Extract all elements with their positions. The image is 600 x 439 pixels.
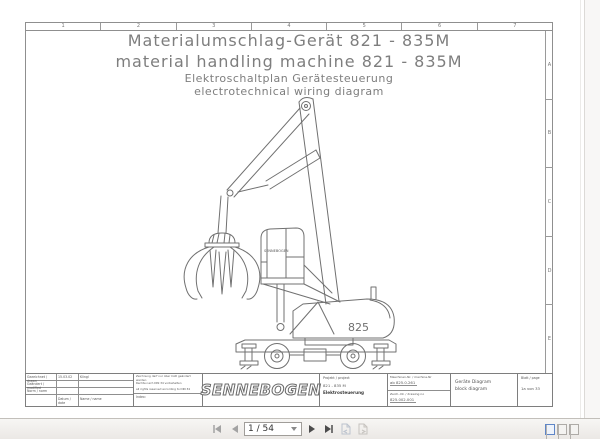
chevron-down-icon[interactable] [291,427,297,431]
frame-row-label: D [546,237,553,306]
index-label: Index: [134,393,202,406]
previous-page-button[interactable] [227,422,241,436]
notice-line-3: all rights reserved according to DIN 34 [136,388,201,392]
page-edge-line [580,0,581,418]
frame-row-label: C [546,168,553,237]
logo-text: SENNEBOGEN [201,381,322,399]
title-de: Materialumschlag-Gerät 821 - 835M [25,31,553,50]
drawn-label: Gezeichnet / drawn [26,374,56,380]
previous-view-button[interactable] [339,422,353,436]
modified-label: Geändert / modified [26,381,56,387]
sheet-page-box: Blatt / page 1a von 33 [517,374,554,406]
drawn-name: Klingl [78,374,133,380]
sheet-page-value: 1a von 33 [521,386,554,391]
frame-column-label: 3 [177,23,252,30]
frame-column-label: 4 [252,23,327,30]
frame-column-label: 1 [26,23,101,30]
doc-title-en: block diagram [455,386,517,393]
rights-notice: Zeichnung darf nur über CAD geändert wer… [133,374,202,406]
project-subsystem: Elektrosteuerung [323,390,387,395]
notice-line-2: Rechte nach DIN 34 vorbehalten [136,382,201,386]
machine-nr-value: ab 825.0.261 [390,379,417,386]
frame-row-label: B [546,100,553,169]
project-value: 821 - 835 M [323,383,387,388]
title-block: Gezeichnet / drawn 15.03.02 Klingl Geänd… [25,373,553,407]
frame-columns: 1234567 [25,22,553,31]
name-label: Name / name [78,395,133,406]
frame-column-label: 2 [101,23,176,30]
drawn-date: 15.03.02 [56,374,78,380]
project-label: Projekt / project [323,376,387,380]
frame-column-label: 7 [478,23,552,30]
number-box: Maschinen-Nr. / machine-Nr ab 825.0.261 … [387,374,450,406]
page-number-box[interactable] [244,422,302,436]
sennebogen-logo: SENNEBOGEN [202,374,319,406]
viewer-toolbar [0,418,600,439]
next-page-button[interactable] [305,422,319,436]
title-en: material handling machine 821 - 835M [25,52,553,71]
sheet-page-label: Blatt / page [521,376,554,380]
next-view-button[interactable] [356,422,370,436]
page-number-input[interactable] [245,424,289,434]
single-page-view-icon[interactable] [545,424,555,435]
pdf-viewer-window: 1234567 ABCDE Materialumschlag-Gerät 821… [0,0,600,439]
last-page-button[interactable] [322,422,336,436]
continuous-view-icon[interactable] [557,424,567,435]
subtitle-en: electrotechnical wiring diagram [25,85,553,98]
drawing-nr-value: 825.002.001 [390,396,416,403]
frame-row-label: E [546,305,553,373]
project-box: Projekt / project 821 - 835 M Elektroste… [319,374,387,406]
frame-column-label: 5 [327,23,402,30]
title-block-approvals: Gezeichnet / drawn 15.03.02 Klingl Geänd… [26,374,133,406]
document-title-box: Geräte Diagram block diagram [450,374,517,406]
frame-column-label: 6 [402,23,477,30]
first-page-button[interactable] [210,422,224,436]
vertical-scrollbar[interactable] [584,0,600,418]
doc-title-de: Geräte Diagram [455,379,517,386]
subtitle-de: Elektroschaltplan Gerätesteuerung [25,72,553,85]
two-page-view-icon[interactable] [569,424,579,435]
norm-label: Norm / norm [26,388,56,394]
date-label: Datum / date [56,395,78,406]
